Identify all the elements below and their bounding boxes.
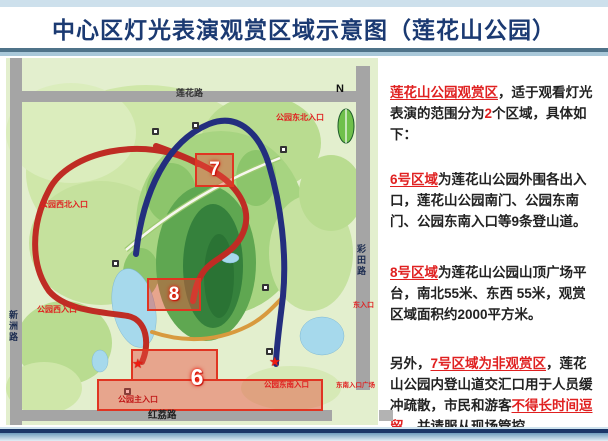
top-strip bbox=[0, 0, 608, 7]
label-se-plaza: 东南入口广场 bbox=[336, 383, 375, 390]
label-w-entrance: 公园西入口 bbox=[37, 306, 77, 314]
paragraph-zone8: 8号区域为莲花山公园山顶广场平台，南北55米、东西 55米，观赏区域面积约200… bbox=[390, 262, 598, 325]
highlight-count: 2 bbox=[485, 106, 493, 121]
para4-text0: 另外， bbox=[390, 356, 431, 371]
highlight-zone8: 8号区域 bbox=[390, 265, 438, 280]
highlight-zone6: 6号区域 bbox=[390, 172, 438, 187]
road-label-lianhua: 莲花路 bbox=[176, 89, 203, 98]
gray-artifact bbox=[379, 410, 393, 421]
page-title: 中心区灯光表演观赏区域示意图（莲花山公园） bbox=[52, 11, 556, 45]
page: 中心区灯光表演观赏区域示意图（莲花山公园） bbox=[0, 0, 608, 441]
zone-8-number: 8 bbox=[148, 279, 200, 310]
label-se-entrance: 公园东南入口 bbox=[264, 381, 309, 389]
header: 中心区灯光表演观赏区域示意图（莲花山公园） bbox=[0, 7, 608, 48]
content: 莲花路 N 公园东北入口 公园西北入口 公园西入口 东入口 新洲路 彩田路 红荔… bbox=[0, 56, 608, 437]
zone-6-number: 6 bbox=[182, 361, 212, 393]
footer-gradient bbox=[0, 433, 608, 441]
highlight-zone7: 7号区域为非观赏区 bbox=[431, 356, 547, 371]
compass-icon bbox=[338, 109, 354, 143]
label-nw-entrance: 公园西北入口 bbox=[40, 201, 88, 209]
star-marker-icon: ★ bbox=[269, 355, 281, 368]
park-map: 莲花路 N 公园东北入口 公园西北入口 公园西入口 东入口 新洲路 彩田路 红荔… bbox=[6, 58, 378, 425]
road-label-xinzhou: 新洲路 bbox=[8, 310, 17, 343]
road-label-hongli: 红荔路 bbox=[148, 411, 177, 421]
paragraph-overview: 莲花山公园观赏区，适于观看灯光表演的范围分为2个区域，具体如下： bbox=[390, 82, 598, 145]
label-ne-entrance: 公园东北入口 bbox=[276, 114, 324, 122]
paragraph-zone7: 另外，7号区域为非观赏区，莲花山公园内登山道交汇口用于人员缓冲疏散，市民和游客不… bbox=[390, 353, 598, 437]
road-label-caitian: 彩田路 bbox=[356, 244, 365, 277]
zone-7-number: 7 bbox=[196, 154, 233, 186]
star-marker-icon: ★ bbox=[132, 357, 144, 370]
label-e-entrance: 东入口 bbox=[353, 302, 374, 309]
label-main-entrance: 公园主入口 bbox=[118, 396, 158, 404]
highlight-viewing-area: 莲花山公园观赏区 bbox=[390, 85, 498, 100]
paragraph-zone6: 6号区域为莲花山公园外围各出入口，莲花山公园南门、公园东南门、公园东南入口等9条… bbox=[390, 169, 598, 232]
compass-north-label: N bbox=[336, 84, 344, 95]
footer bbox=[0, 427, 608, 441]
info-panel: 莲花山公园观赏区，适于观看灯光表演的范围分为2个区域，具体如下： 6号区域为莲花… bbox=[378, 56, 608, 437]
